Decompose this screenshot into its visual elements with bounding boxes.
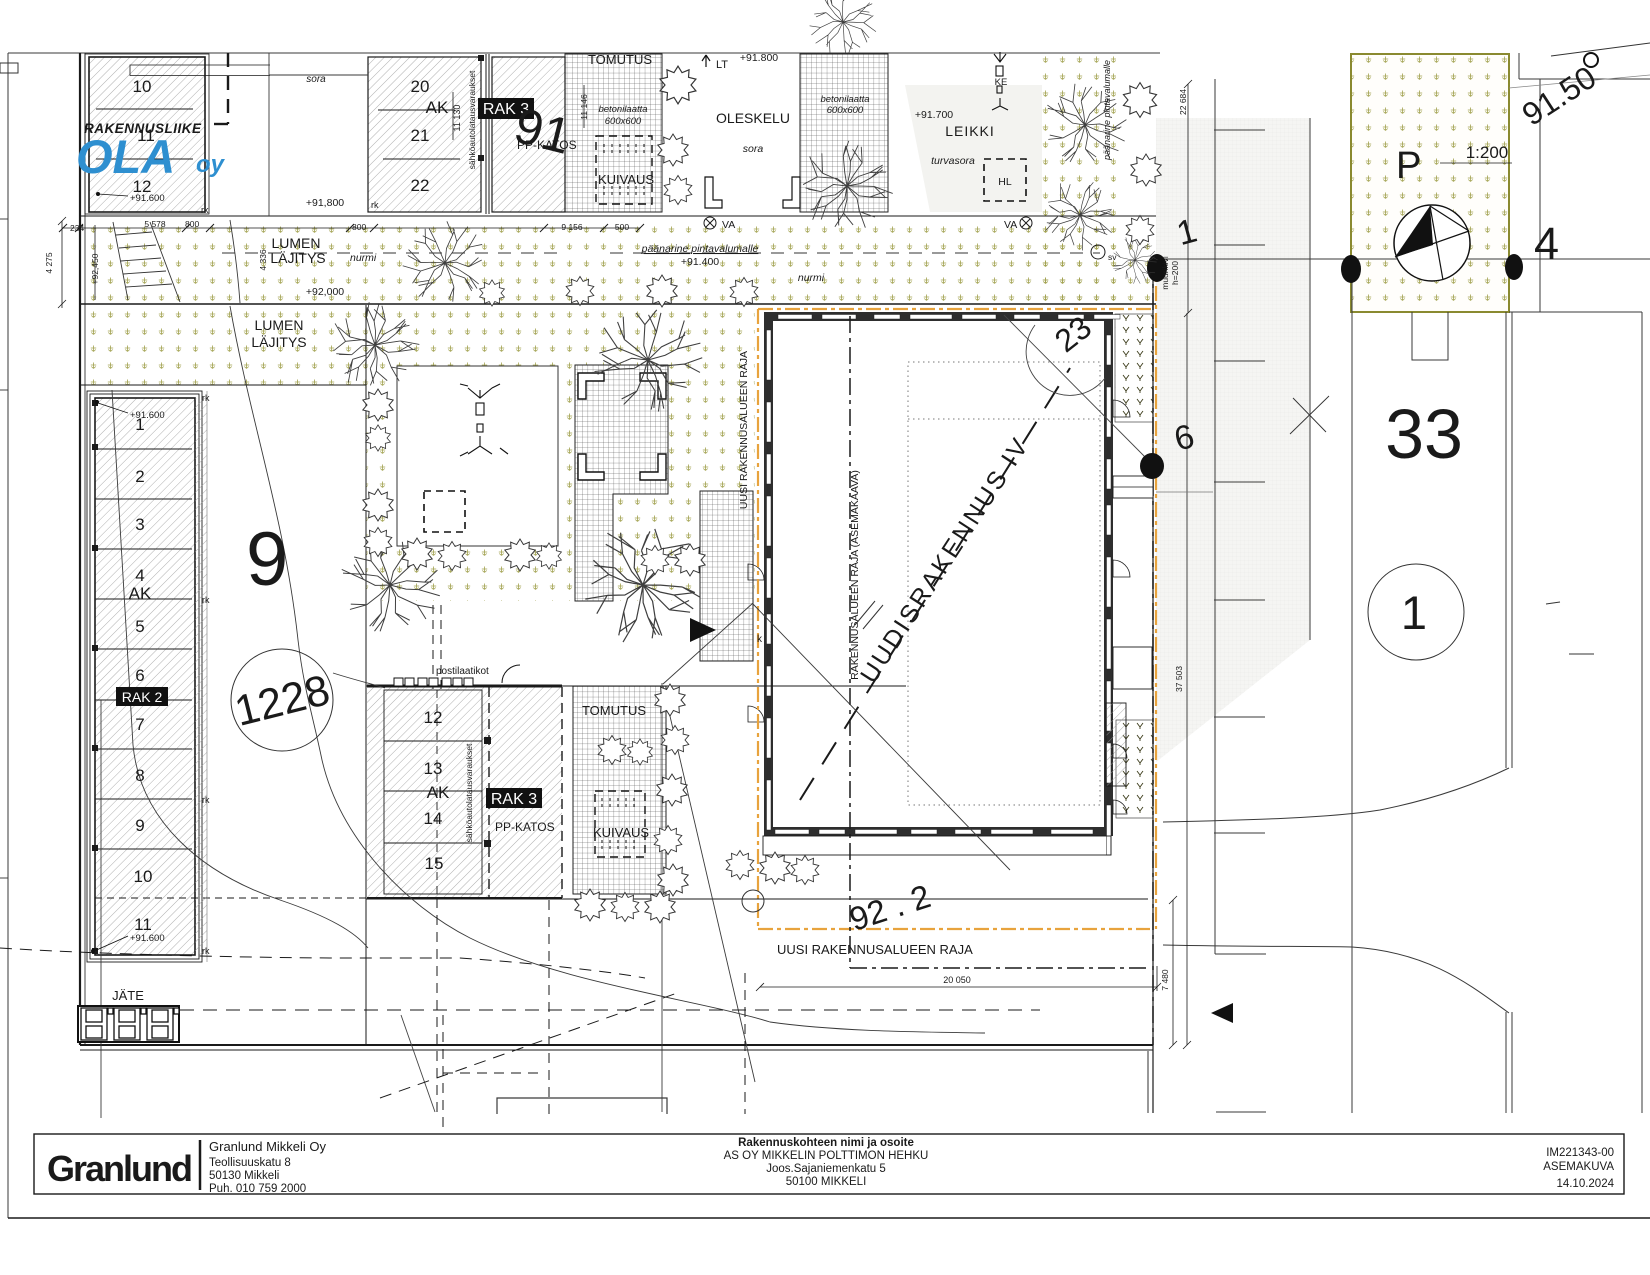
svg-text:UUSI RAKENNUSALUEEN RAJA: UUSI RAKENNUSALUEEN RAJA <box>738 351 750 509</box>
svg-text:22 684: 22 684 <box>1178 89 1188 115</box>
svg-text:9: 9 <box>246 517 288 602</box>
svg-text:LUMEN: LUMEN <box>271 235 320 251</box>
svg-text:14.10.2024: 14.10.2024 <box>1556 1178 1614 1190</box>
svg-text:5: 5 <box>135 617 144 636</box>
svg-text:4 336: 4 336 <box>258 249 268 271</box>
svg-text:turvasora: turvasora <box>931 155 975 167</box>
svg-text:sähköautolatausvaraukset: sähköautolatausvaraukset <box>467 70 477 169</box>
svg-text:nurmi: nurmi <box>350 252 377 264</box>
svg-text:33: 33 <box>1385 395 1463 473</box>
svg-text:600x600: 600x600 <box>827 105 864 116</box>
svg-text:LT: LT <box>716 59 728 71</box>
svg-text:10: 10 <box>134 867 153 886</box>
svg-text:ASEMAKUVA: ASEMAKUVA <box>1543 1161 1614 1173</box>
svg-text:13: 13 <box>424 759 443 778</box>
svg-text:LÄJITYS: LÄJITYS <box>270 250 325 266</box>
svg-text:KUIVAUS: KUIVAUS <box>598 172 654 187</box>
svg-text:+92,450: +92,450 <box>90 253 100 284</box>
svg-text:+91.600: +91.600 <box>130 933 165 944</box>
svg-text:50100 MIKKELI: 50100 MIKKELI <box>786 1176 867 1188</box>
svg-text:rk: rk <box>371 200 379 210</box>
svg-text:2: 2 <box>135 467 144 486</box>
svg-text:11: 11 <box>134 915 152 934</box>
svg-text:LUMEN: LUMEN <box>254 317 303 333</box>
svg-text:800: 800 <box>185 219 199 229</box>
svg-text:15: 15 <box>425 854 444 873</box>
svg-text:rk: rk <box>202 946 210 956</box>
svg-text:9: 9 <box>135 816 144 835</box>
svg-text:Granlund Mikkeli Oy: Granlund Mikkeli Oy <box>209 1139 327 1154</box>
svg-text:postilaatikot: postilaatikot <box>436 666 489 677</box>
svg-text:4 275: 4 275 <box>44 252 54 274</box>
svg-text:nurmi: nurmi <box>798 272 825 284</box>
svg-text:7: 7 <box>135 715 144 734</box>
svg-text:+91,800: +91,800 <box>306 197 344 209</box>
svg-text:AS OY MIKKELIN POLTTIMON HEHKU: AS OY MIKKELIN POLTTIMON HEHKU <box>724 1150 929 1162</box>
svg-text:HL: HL <box>998 176 1012 188</box>
svg-text:RAK 2: RAK 2 <box>122 689 163 705</box>
svg-text:rk: rk <box>201 205 209 215</box>
svg-text:sähköautolatausvaraukset: sähköautolatausvaraukset <box>464 743 474 842</box>
svg-text:KE: KE <box>995 77 1008 88</box>
svg-text:+91.400: +91.400 <box>681 256 719 268</box>
svg-text:+91.600: +91.600 <box>130 410 165 421</box>
svg-text:TOMUTUS: TOMUTUS <box>582 703 646 718</box>
svg-text:AK: AK <box>426 98 449 117</box>
svg-text:VA: VA <box>722 219 735 231</box>
svg-text:OLESKELU: OLESKELU <box>716 110 790 126</box>
svg-text:Granlund: Granlund <box>47 1148 191 1189</box>
svg-text:Joos.Sajaniemenkatu 5: Joos.Sajaniemenkatu 5 <box>766 1163 886 1175</box>
svg-text:AK: AK <box>129 584 152 603</box>
svg-text:UUSI RAKENNUSALUEEN RAJA: UUSI RAKENNUSALUEEN RAJA <box>777 942 973 957</box>
svg-text:h=200: h=200 <box>1170 261 1180 285</box>
svg-text:PP-KATOS: PP-KATOS <box>495 820 555 834</box>
svg-text:P: P <box>1396 145 1421 187</box>
svg-text:RAKENNUSALUEEN RAJA (ASEMAKAAV: RAKENNUSALUEEN RAJA (ASEMAKAAVA) <box>849 470 861 680</box>
svg-text:betonilaatta: betonilaatta <box>598 104 647 115</box>
svg-text:rk: rk <box>202 595 210 605</box>
svg-text:+91.600: +91.600 <box>130 193 165 204</box>
svg-text:7 480: 7 480 <box>1160 969 1170 991</box>
svg-text:Puh. 010 759 2000: Puh. 010 759 2000 <box>209 1183 306 1195</box>
svg-text:betonilaatta: betonilaatta <box>820 94 869 105</box>
svg-text:50130 Mikkeli: 50130 Mikkeli <box>209 1170 279 1182</box>
svg-text:sora: sora <box>306 74 326 85</box>
svg-text:22: 22 <box>411 176 430 195</box>
svg-text:9 156: 9 156 <box>561 222 583 232</box>
svg-text:IM221343-00: IM221343-00 <box>1546 1147 1614 1159</box>
svg-text:21: 21 <box>411 126 430 145</box>
svg-text:600x600: 600x600 <box>605 116 642 127</box>
svg-text:+91.800: +91.800 <box>740 52 778 64</box>
svg-text:TOMUTUS: TOMUTUS <box>588 52 652 67</box>
svg-text:800: 800 <box>352 222 366 232</box>
svg-text:RAK 3: RAK 3 <box>491 791 537 808</box>
svg-text:234: 234 <box>70 223 84 233</box>
svg-text:12: 12 <box>424 708 443 727</box>
svg-text:Teollisuuskatu 8: Teollisuuskatu 8 <box>209 1157 291 1169</box>
svg-text:LEIKKI: LEIKKI <box>945 123 995 139</box>
svg-text:4: 4 <box>135 566 144 585</box>
svg-text:rk: rk <box>202 393 210 403</box>
svg-text:14: 14 <box>424 809 443 828</box>
svg-text:3: 3 <box>135 515 144 534</box>
svg-text:11 130: 11 130 <box>452 105 462 132</box>
svg-text:20: 20 <box>411 77 430 96</box>
svg-text:sv: sv <box>1108 252 1117 262</box>
svg-text:8: 8 <box>135 766 144 785</box>
svg-text:Rakennuskohteen nimi ja osoite: Rakennuskohteen nimi ja osoite <box>738 1137 914 1149</box>
svg-text:JÄTE: JÄTE <box>112 988 144 1003</box>
svg-text:OLA: OLA <box>76 130 175 183</box>
svg-text:4: 4 <box>1534 218 1559 269</box>
svg-text:VA: VA <box>1004 219 1017 231</box>
svg-text:PP-KATOS: PP-KATOS <box>517 138 577 152</box>
svg-text:20 050: 20 050 <box>943 975 971 985</box>
svg-text:37 503: 37 503 <box>1174 666 1184 692</box>
svg-text:+91.700: +91.700 <box>915 109 953 121</box>
svg-text:1: 1 <box>1401 586 1427 639</box>
svg-text:päänarine pintavalumalle: päänarine pintavalumalle <box>1102 60 1112 161</box>
svg-text:muurikivi: muurikivi <box>1160 256 1170 290</box>
svg-text:oy: oy <box>196 151 226 178</box>
svg-text:6: 6 <box>135 666 144 685</box>
svg-text:LÄJITYS: LÄJITYS <box>251 334 306 350</box>
svg-text:5 578: 5 578 <box>144 219 166 229</box>
svg-text:+92,000: +92,000 <box>306 286 344 298</box>
svg-text:päänarine pintavalumalle: päänarine pintavalumalle <box>641 243 759 255</box>
svg-text:sora: sora <box>743 143 764 155</box>
svg-text:AK: AK <box>427 783 450 802</box>
svg-text:rk: rk <box>202 795 210 805</box>
svg-text:500: 500 <box>615 222 629 232</box>
svg-text:11 146: 11 146 <box>579 94 589 120</box>
svg-text:KUIVAUS: KUIVAUS <box>593 825 649 840</box>
svg-text:10: 10 <box>133 77 152 96</box>
svg-text:1:200: 1:200 <box>1466 143 1509 162</box>
